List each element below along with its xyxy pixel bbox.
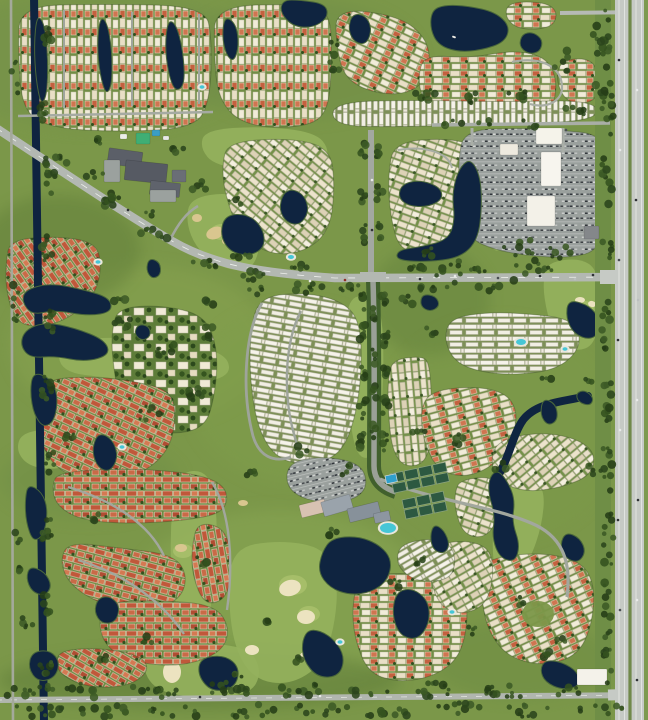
- tree: [40, 600, 48, 608]
- tree: [377, 234, 384, 241]
- tree: [360, 197, 364, 201]
- tree: [603, 64, 610, 71]
- tree: [52, 154, 60, 162]
- tree: [350, 287, 355, 292]
- tree: [303, 710, 310, 717]
- tree: [562, 244, 569, 251]
- tree: [414, 561, 420, 567]
- tree: [335, 708, 341, 714]
- tree: [475, 283, 483, 291]
- tree: [600, 558, 609, 567]
- tree: [30, 622, 35, 627]
- tree: [373, 357, 377, 361]
- tree: [515, 243, 523, 251]
- tree: [90, 704, 99, 713]
- tree: [556, 692, 562, 698]
- tree: [127, 316, 133, 322]
- tree: [63, 159, 71, 167]
- tree: [200, 259, 208, 267]
- aerial-imagery: [0, 0, 648, 720]
- tree: [599, 469, 603, 473]
- tree: [38, 243, 46, 251]
- tree: [43, 156, 48, 161]
- tree: [607, 629, 612, 634]
- tree: [149, 640, 154, 645]
- car: [497, 277, 500, 280]
- tree: [462, 700, 470, 708]
- car: [371, 229, 374, 232]
- tree: [142, 632, 150, 640]
- tree: [9, 68, 15, 74]
- tree: [45, 170, 49, 174]
- tree: [232, 672, 237, 677]
- tree: [183, 704, 188, 709]
- tree: [11, 685, 18, 692]
- tree: [607, 487, 613, 493]
- tree: [588, 463, 592, 467]
- tree: [610, 535, 616, 541]
- tree: [261, 272, 265, 276]
- tree: [557, 255, 563, 261]
- tree: [578, 708, 583, 713]
- courtyard-green: [522, 601, 554, 627]
- tree: [527, 125, 531, 129]
- tree: [11, 304, 16, 309]
- tree: [385, 402, 393, 410]
- tree: [570, 105, 576, 111]
- tree: [599, 239, 606, 246]
- tree: [541, 268, 546, 273]
- tree: [540, 376, 545, 381]
- tree: [325, 531, 333, 539]
- tree: [362, 330, 366, 334]
- tree: [192, 712, 201, 720]
- tree: [170, 713, 176, 719]
- tree: [155, 230, 163, 238]
- tree: [545, 706, 549, 710]
- tree: [518, 595, 522, 599]
- tree: [295, 688, 301, 694]
- tree: [24, 624, 28, 628]
- tree: [473, 626, 477, 630]
- tree: [130, 684, 136, 690]
- tree: [602, 475, 606, 479]
- tree: [546, 266, 550, 270]
- tree: [424, 326, 429, 331]
- tree: [155, 352, 161, 358]
- tree: [47, 36, 56, 45]
- lake: [135, 325, 150, 340]
- tree: [466, 625, 471, 630]
- building: [527, 196, 555, 226]
- tree: [51, 462, 56, 467]
- car: [419, 278, 422, 281]
- tree: [407, 265, 414, 272]
- tree: [91, 517, 99, 525]
- sand-bunker: [245, 645, 259, 655]
- tree: [37, 685, 42, 690]
- tree: [202, 296, 210, 304]
- tree: [45, 593, 51, 599]
- tree: [455, 711, 460, 716]
- car: [636, 399, 639, 402]
- tree: [592, 81, 600, 89]
- tree: [48, 251, 55, 258]
- tree: [563, 47, 572, 56]
- tree: [380, 410, 386, 416]
- tree: [521, 118, 525, 122]
- tree: [522, 703, 528, 709]
- car: [574, 278, 577, 281]
- tree: [601, 611, 608, 618]
- tree: [345, 464, 349, 468]
- tree: [328, 702, 336, 710]
- tree: [606, 552, 613, 559]
- tree: [600, 51, 605, 56]
- tree: [292, 658, 300, 666]
- tree: [613, 703, 620, 710]
- tree: [607, 390, 615, 398]
- tree: [339, 286, 344, 291]
- tree: [526, 263, 533, 270]
- tree: [602, 634, 608, 640]
- tree: [564, 54, 571, 61]
- tree: [31, 691, 36, 696]
- tree: [360, 417, 364, 421]
- tree: [608, 246, 615, 253]
- car: [637, 499, 640, 502]
- tree: [446, 692, 450, 696]
- tree: [103, 657, 109, 663]
- tree: [397, 706, 403, 712]
- tree: [385, 690, 389, 694]
- swimming-pool: [120, 445, 125, 449]
- tree: [108, 193, 116, 201]
- tree: [576, 107, 584, 115]
- tree: [46, 452, 53, 459]
- tree: [447, 688, 451, 692]
- tree: [292, 286, 300, 294]
- tree: [394, 583, 402, 591]
- building: [500, 144, 518, 155]
- tree: [429, 246, 433, 250]
- tree: [420, 265, 427, 272]
- swimming-pool: [516, 339, 526, 345]
- tree: [527, 714, 531, 718]
- tree: [119, 704, 127, 712]
- tree: [602, 165, 610, 173]
- tree: [15, 82, 20, 87]
- tree: [522, 270, 529, 277]
- tree: [373, 196, 380, 203]
- tree: [50, 687, 55, 692]
- house-cluster: [250, 294, 361, 464]
- tree: [608, 132, 613, 137]
- tree: [12, 316, 17, 321]
- car: [636, 599, 639, 602]
- tree: [205, 332, 212, 339]
- tree: [146, 687, 150, 691]
- swimming-pool: [338, 640, 343, 644]
- tree: [458, 120, 465, 127]
- tree: [365, 713, 370, 718]
- tree: [361, 411, 366, 416]
- tree: [496, 467, 500, 471]
- tree: [470, 632, 475, 637]
- building: [152, 130, 160, 136]
- tree: [374, 183, 381, 190]
- building: [584, 226, 599, 239]
- tree: [121, 295, 130, 304]
- tree: [356, 443, 365, 452]
- house-cluster: [506, 2, 556, 29]
- tree: [21, 691, 30, 700]
- tree: [79, 689, 83, 693]
- tree: [359, 227, 366, 234]
- car: [619, 609, 622, 612]
- tree: [522, 89, 527, 94]
- tree: [304, 264, 310, 270]
- tree: [327, 59, 333, 65]
- tree: [62, 434, 69, 441]
- tree: [370, 386, 377, 393]
- tree: [603, 9, 607, 13]
- car: [637, 299, 640, 302]
- tree: [161, 350, 166, 355]
- tree: [101, 171, 105, 175]
- tree: [597, 38, 605, 46]
- tree: [552, 64, 558, 70]
- tree: [456, 263, 462, 269]
- tree: [50, 169, 58, 177]
- building: [163, 136, 169, 140]
- tree: [344, 704, 350, 710]
- tree: [138, 409, 142, 413]
- tree: [607, 185, 615, 193]
- building: [104, 160, 120, 182]
- tree: [344, 469, 349, 474]
- tree: [510, 691, 514, 695]
- car: [618, 59, 621, 62]
- tree: [398, 579, 402, 583]
- tree: [45, 683, 51, 689]
- lake: [95, 597, 118, 623]
- tree: [259, 287, 264, 292]
- lake: [147, 260, 161, 278]
- tree: [609, 93, 615, 99]
- tree: [90, 169, 96, 175]
- tree: [427, 694, 433, 700]
- tree: [80, 711, 86, 717]
- tree: [385, 439, 389, 443]
- tree: [48, 517, 53, 522]
- tree: [191, 260, 196, 265]
- tree: [156, 687, 161, 692]
- tree: [380, 333, 387, 340]
- tree: [287, 688, 292, 693]
- tree: [483, 269, 487, 273]
- tree: [372, 394, 380, 402]
- tree: [451, 119, 455, 123]
- swimming-pool: [200, 85, 205, 89]
- tree: [601, 446, 606, 451]
- tree: [544, 376, 548, 380]
- car: [619, 149, 622, 152]
- tree: [464, 92, 473, 101]
- tree: [384, 340, 388, 344]
- building: [172, 170, 186, 182]
- tree: [44, 233, 50, 239]
- tree: [47, 26, 52, 31]
- tree: [601, 336, 608, 343]
- tree: [602, 602, 610, 610]
- tree: [166, 691, 171, 696]
- tree: [433, 680, 439, 686]
- sand-bunker: [192, 214, 202, 222]
- tree: [4, 692, 11, 699]
- tree: [412, 90, 419, 97]
- tree: [44, 462, 48, 466]
- tree: [221, 690, 227, 696]
- tree: [43, 253, 47, 257]
- tree: [359, 322, 367, 330]
- tree: [104, 705, 112, 713]
- tree: [95, 511, 101, 517]
- tree: [39, 101, 43, 105]
- tree: [283, 692, 289, 698]
- tree: [362, 372, 368, 378]
- tree: [385, 433, 389, 437]
- tree: [422, 89, 431, 98]
- tree: [43, 713, 47, 717]
- tree: [39, 391, 47, 399]
- tree: [149, 407, 153, 411]
- tree: [115, 296, 120, 301]
- tree: [593, 703, 598, 708]
- tree: [9, 281, 18, 290]
- tree: [243, 253, 247, 257]
- tree: [11, 295, 17, 301]
- tree: [156, 410, 163, 417]
- tree: [359, 365, 364, 370]
- tree: [610, 113, 617, 120]
- swimming-pool: [450, 610, 455, 614]
- house-cluster: [446, 313, 579, 374]
- tree: [602, 593, 610, 601]
- tree: [374, 189, 380, 195]
- tree: [193, 709, 197, 713]
- tree: [13, 61, 17, 65]
- tree: [48, 309, 53, 314]
- tree: [356, 335, 365, 344]
- tree: [380, 364, 387, 371]
- tree: [43, 609, 51, 617]
- tree: [159, 694, 165, 700]
- car: [635, 199, 638, 202]
- tree: [600, 578, 609, 587]
- tree: [297, 703, 303, 709]
- tree: [382, 291, 388, 297]
- tree: [604, 200, 612, 208]
- tree: [428, 252, 436, 260]
- car: [565, 129, 568, 132]
- tree: [423, 249, 429, 255]
- tree: [452, 280, 458, 286]
- tree: [202, 186, 209, 193]
- sand-bunker: [297, 610, 315, 624]
- tree: [607, 460, 616, 469]
- tree: [79, 682, 83, 686]
- tree: [601, 703, 609, 711]
- tree: [43, 110, 49, 116]
- tree: [112, 320, 119, 327]
- tree: [456, 432, 461, 437]
- tree: [209, 681, 215, 687]
- tree: [417, 285, 424, 292]
- parking-lot: [287, 458, 366, 502]
- tree: [608, 380, 614, 386]
- tree: [270, 706, 278, 714]
- tree: [250, 276, 257, 283]
- tree: [562, 689, 566, 693]
- tree: [547, 375, 555, 383]
- tree: [329, 527, 334, 532]
- tree: [474, 98, 478, 102]
- tree: [431, 285, 435, 289]
- lake: [520, 33, 542, 53]
- tree: [368, 691, 373, 696]
- tree: [44, 322, 51, 329]
- building: [577, 669, 607, 685]
- tree: [601, 542, 606, 547]
- tree: [387, 579, 393, 585]
- tree: [514, 263, 519, 268]
- tree: [195, 555, 199, 559]
- tree: [330, 51, 338, 59]
- tree: [515, 708, 523, 716]
- tree: [383, 371, 389, 377]
- tree: [531, 123, 539, 131]
- sand-bunker: [238, 500, 248, 506]
- tree: [369, 310, 376, 317]
- tree: [362, 307, 367, 312]
- tree: [608, 516, 615, 523]
- tree: [507, 704, 512, 709]
- car: [344, 279, 347, 282]
- tree: [26, 706, 32, 712]
- tree: [240, 675, 244, 679]
- tree: [49, 533, 54, 538]
- tree: [203, 560, 210, 567]
- tree: [550, 268, 554, 272]
- tree: [44, 181, 50, 187]
- tree: [493, 690, 501, 698]
- tree: [605, 404, 614, 413]
- tree: [544, 651, 551, 658]
- tree: [602, 100, 607, 105]
- car: [371, 179, 374, 182]
- tree: [422, 429, 427, 434]
- house-cluster: [53, 469, 226, 523]
- tree: [47, 313, 54, 320]
- tree: [295, 450, 303, 458]
- tree: [43, 670, 50, 677]
- tree: [278, 684, 286, 692]
- tree: [583, 377, 588, 382]
- tree: [333, 529, 339, 535]
- tree: [17, 537, 23, 543]
- tree: [329, 40, 334, 45]
